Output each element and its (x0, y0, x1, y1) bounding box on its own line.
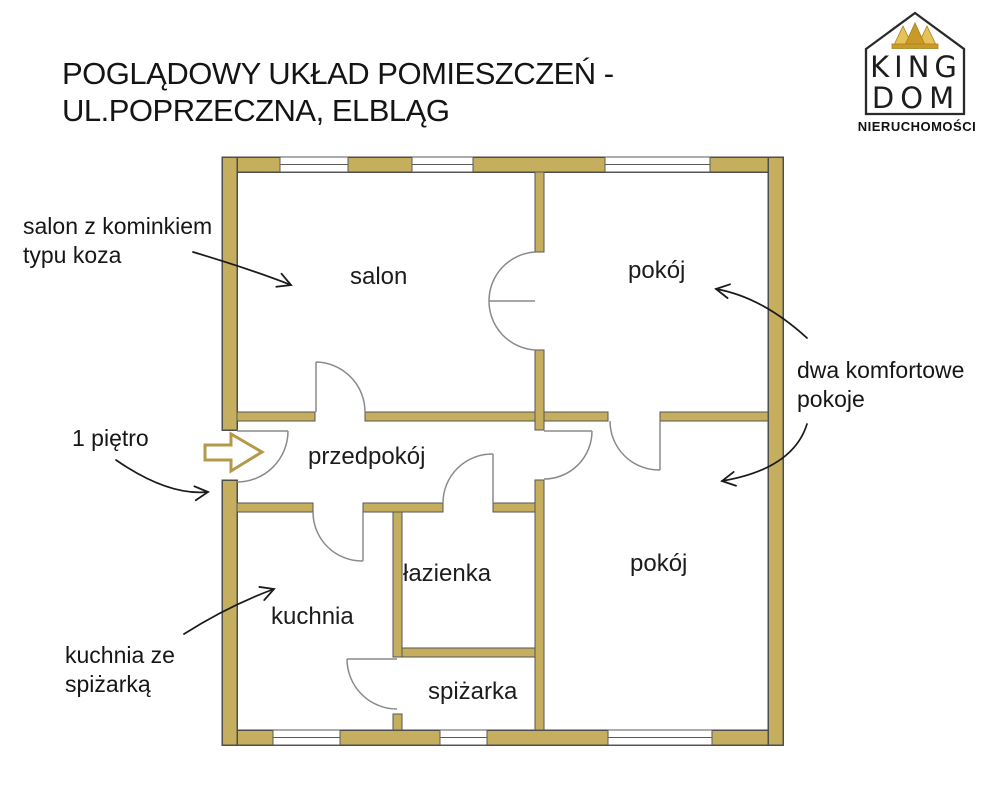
note-kitchen-pantry-line2: spiżarką (65, 670, 175, 699)
doors (237, 252, 660, 709)
wall-right (768, 157, 783, 745)
window-bottom-pantry (440, 730, 487, 745)
room-label-room-bottom: pokój (630, 550, 687, 578)
note-kitchen-pantry-line1: kuchnia ze (65, 641, 175, 670)
arrow-floor-note (116, 460, 208, 492)
page-title: POGLĄDOWY UKŁAD POMIESZCZEŃ - UL.POPRZEC… (62, 55, 614, 129)
door-double-salon-room (489, 252, 535, 350)
page-title-line2: UL.POPRZECZNA, ELBLĄG (62, 92, 614, 129)
note-salon-fireplace-line1: salon z kominkiem (23, 212, 212, 241)
wall-hall-south-b (363, 503, 443, 512)
wall-bath-pantry (402, 648, 535, 657)
wall-left-lower (222, 480, 237, 745)
wall-mid-west-a (237, 412, 315, 421)
note-salon-fireplace-line2: typu koza (23, 241, 212, 270)
wall-mid-east-a (544, 412, 608, 421)
room-label-kitchen: kuchnia (271, 603, 354, 631)
wall-center-vertical-a (535, 172, 544, 252)
window-bottom-room (608, 730, 712, 745)
window-top-room (605, 157, 710, 172)
note-two-rooms-line2: pokoje (797, 385, 964, 414)
room-label-pantry: spiżarka (428, 678, 517, 706)
wall-hall-south-c (493, 503, 535, 512)
floor-plan-page: KING DOM NIERUCHOMOŚCI POGLĄDOWY UKŁAD P… (0, 0, 982, 800)
wall-center-vertical-b (535, 350, 544, 430)
arrow-rooms-note-upper (716, 289, 807, 338)
window-top-salon-left (280, 157, 348, 172)
arrow-rooms-note-lower (722, 424, 807, 481)
door-hall-to-room (544, 431, 592, 479)
wall-hall-south-a (237, 503, 313, 512)
note-two-rooms: dwa komfortowe pokoje (797, 356, 964, 414)
wall-kitchen-bath-b (393, 714, 402, 730)
wall-center-vertical-c (535, 480, 544, 730)
room-label-bathroom: łazienka (403, 560, 491, 588)
wall-left-upper (222, 157, 237, 430)
room-label-salon: salon (350, 263, 407, 291)
logo-brand-bottom: DOM (872, 81, 960, 115)
page-title-line1: POGLĄDOWY UKŁAD POMIESZCZEŃ - (62, 55, 614, 92)
entrance-arrow-icon (205, 434, 262, 471)
note-salon-fireplace: salon z kominkiem typu koza (23, 212, 212, 270)
wall-mid-west-b (365, 412, 535, 421)
window-top-salon-right (412, 157, 473, 172)
door-salon (316, 362, 365, 412)
note-kitchen-pantry: kuchnia ze spiżarką (65, 641, 175, 699)
agency-logo: KING DOM NIERUCHOMOŚCI (858, 13, 976, 134)
window-bottom-kitchen (273, 730, 340, 745)
logo-subtitle: NIERUCHOMOŚCI (858, 119, 976, 134)
door-pantry (347, 659, 397, 709)
door-bathroom (443, 454, 493, 503)
door-kitchen (313, 512, 363, 561)
wall-kitchen-bath-a (393, 512, 402, 657)
wall-mid-east-b (660, 412, 768, 421)
door-room-to-room (610, 421, 660, 470)
room-label-room-top: pokój (628, 257, 685, 285)
note-two-rooms-line1: dwa komfortowe (797, 356, 964, 385)
logo-brand-top: KING (870, 50, 962, 84)
room-label-hall: przedpokój (308, 443, 425, 471)
note-first-floor: 1 piętro (72, 424, 149, 453)
